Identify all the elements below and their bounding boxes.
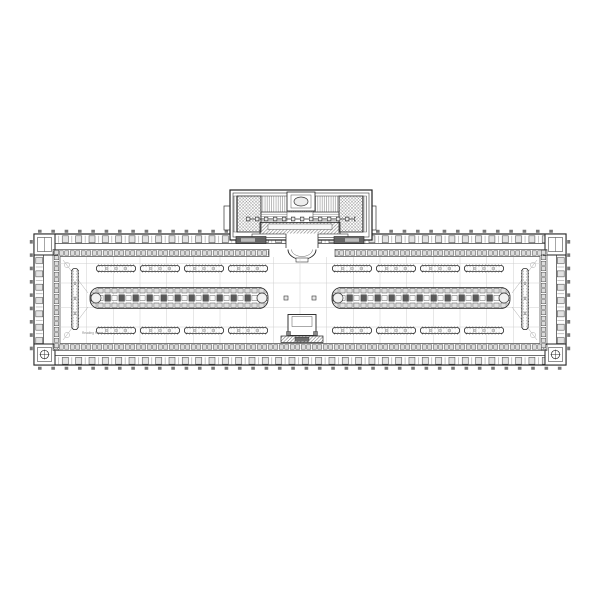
reading-table — [332, 327, 371, 334]
reading-table-end-right — [521, 268, 528, 329]
column — [284, 296, 288, 300]
corner-pavilion-top-left — [34, 234, 55, 255]
reading-room-label: Reading Room — [82, 331, 104, 335]
corner-pavilion-bottom-right — [545, 344, 566, 365]
reading-table — [184, 327, 223, 334]
reading-table — [228, 327, 267, 334]
spine-left — [90, 288, 268, 309]
drawing-sheet: Reading Room — [0, 0, 600, 600]
vestibule-step — [296, 258, 308, 262]
reading-table — [464, 265, 503, 272]
reading-table — [228, 265, 267, 272]
pavilion-pier-left — [237, 196, 261, 232]
reading-table — [420, 327, 459, 334]
corner-pavilion-top-right — [545, 234, 566, 255]
entrance-passage — [286, 234, 318, 250]
reading-table — [140, 327, 179, 334]
wall-band-right — [557, 244, 566, 357]
reading-table — [420, 265, 459, 272]
floor-plan-drawing: Reading Room — [0, 0, 600, 600]
spine-right — [332, 288, 510, 309]
pavilion-stair-right — [313, 212, 339, 221]
reading-table — [376, 327, 415, 334]
reading-table — [140, 265, 179, 272]
reading-table — [184, 265, 223, 272]
reading-table — [96, 265, 135, 272]
entrance-pavilion — [224, 190, 376, 240]
reading-table — [332, 265, 371, 272]
column — [312, 296, 316, 300]
reading-table — [376, 265, 415, 272]
corner-pavilion-bottom-left — [34, 344, 55, 365]
wall-band-left — [35, 244, 44, 357]
reading-table-end-left — [71, 268, 78, 329]
reading-table — [464, 327, 503, 334]
pavilion-pier-right — [339, 196, 363, 232]
wall-band-bottom — [35, 357, 565, 366]
pavilion-cartouche — [287, 192, 315, 211]
